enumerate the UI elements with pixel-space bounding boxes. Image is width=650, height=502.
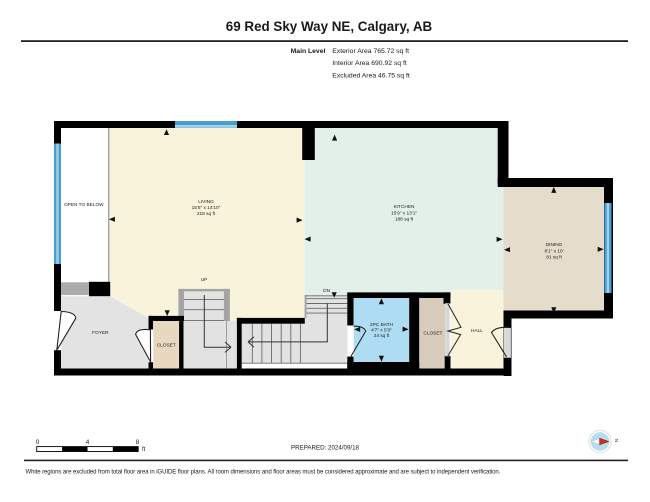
svg-text:CLOSET: CLOSET bbox=[157, 343, 176, 349]
svg-text:Excluded Area 46.75 sq ft: Excluded Area 46.75 sq ft bbox=[332, 72, 410, 79]
svg-text:White regions are excluded fro: White regions are excluded from total fl… bbox=[26, 470, 501, 476]
svg-text:Interior Area 690.92 sq ft: Interior Area 690.92 sq ft bbox=[332, 60, 407, 67]
svg-text:OPEN TO BELOW: OPEN TO BELOW bbox=[64, 202, 104, 208]
svg-text:DINING: DINING bbox=[546, 242, 563, 248]
svg-text:Main Level: Main Level bbox=[291, 48, 326, 55]
svg-text:PREPARED: 2024/09/18: PREPARED: 2024/09/18 bbox=[291, 445, 360, 452]
svg-text:15'9" x 13'1": 15'9" x 13'1" bbox=[391, 210, 417, 216]
svg-text:N: N bbox=[614, 439, 619, 442]
svg-text:15'5" x 14'10": 15'5" x 14'10" bbox=[192, 205, 221, 211]
svg-text:ft: ft bbox=[142, 447, 146, 453]
svg-text:81 sq ft: 81 sq ft bbox=[546, 255, 562, 261]
svg-text:0: 0 bbox=[36, 439, 40, 446]
svg-text:69 Red Sky Way NE, Calgary, AB: 69 Red Sky Way NE, Calgary, AB bbox=[226, 19, 433, 34]
svg-text:HALL: HALL bbox=[471, 328, 483, 334]
svg-text:FOYER: FOYER bbox=[92, 330, 109, 336]
svg-text:CLOSET: CLOSET bbox=[423, 331, 442, 337]
svg-text:Exterior Area 765.72 sq ft: Exterior Area 765.72 sq ft bbox=[332, 48, 409, 55]
svg-text:DN: DN bbox=[323, 288, 330, 294]
svg-text:2PC BATH: 2PC BATH bbox=[370, 322, 393, 328]
svg-text:24 sq ft: 24 sq ft bbox=[374, 333, 390, 339]
svg-text:218 sq ft: 218 sq ft bbox=[197, 211, 216, 217]
svg-text:KITCHEN: KITCHEN bbox=[394, 204, 415, 210]
svg-text:8: 8 bbox=[136, 439, 140, 446]
svg-text:4: 4 bbox=[86, 439, 90, 446]
svg-text:188 sq ft: 188 sq ft bbox=[395, 217, 414, 223]
svg-text:UP: UP bbox=[201, 277, 208, 283]
svg-text:8'1" x 10': 8'1" x 10' bbox=[544, 248, 563, 254]
svg-text:LIVING: LIVING bbox=[198, 199, 214, 205]
svg-text:4'7" x 5'3": 4'7" x 5'3" bbox=[371, 328, 392, 334]
